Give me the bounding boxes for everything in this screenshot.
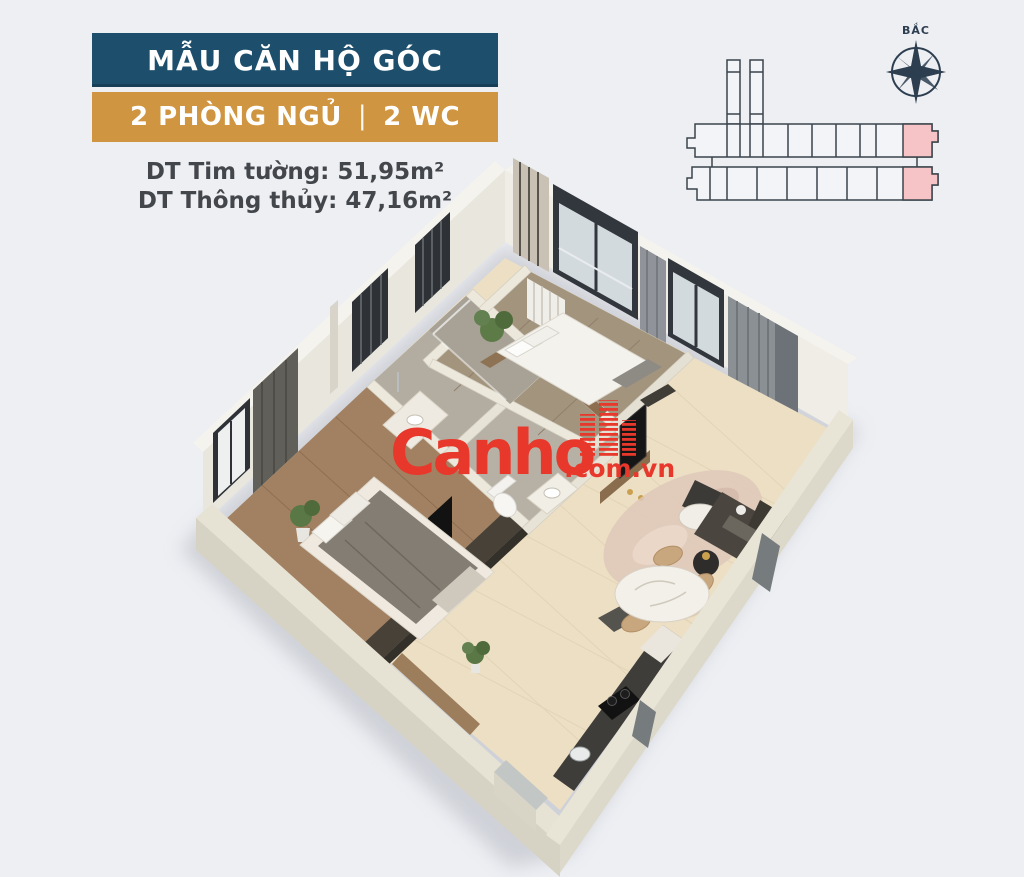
bedroom2-louver-panel bbox=[513, 158, 549, 272]
bath2-basin bbox=[544, 488, 560, 498]
dining-table bbox=[615, 566, 709, 622]
burner-2 bbox=[621, 690, 630, 699]
table-lamp bbox=[702, 552, 710, 560]
page: MẪU CĂN HỘ GÓC 2 PHÒNG NGỦ | 2 WC DT Tim… bbox=[0, 0, 1024, 877]
kitchen-sink bbox=[570, 747, 590, 761]
bath1-basin bbox=[407, 415, 423, 425]
floorplan-render bbox=[0, 0, 1024, 877]
wall-step-shade bbox=[330, 300, 338, 394]
burner bbox=[608, 697, 617, 706]
sofa-pillow bbox=[736, 505, 746, 515]
decor-figurine bbox=[627, 489, 633, 495]
